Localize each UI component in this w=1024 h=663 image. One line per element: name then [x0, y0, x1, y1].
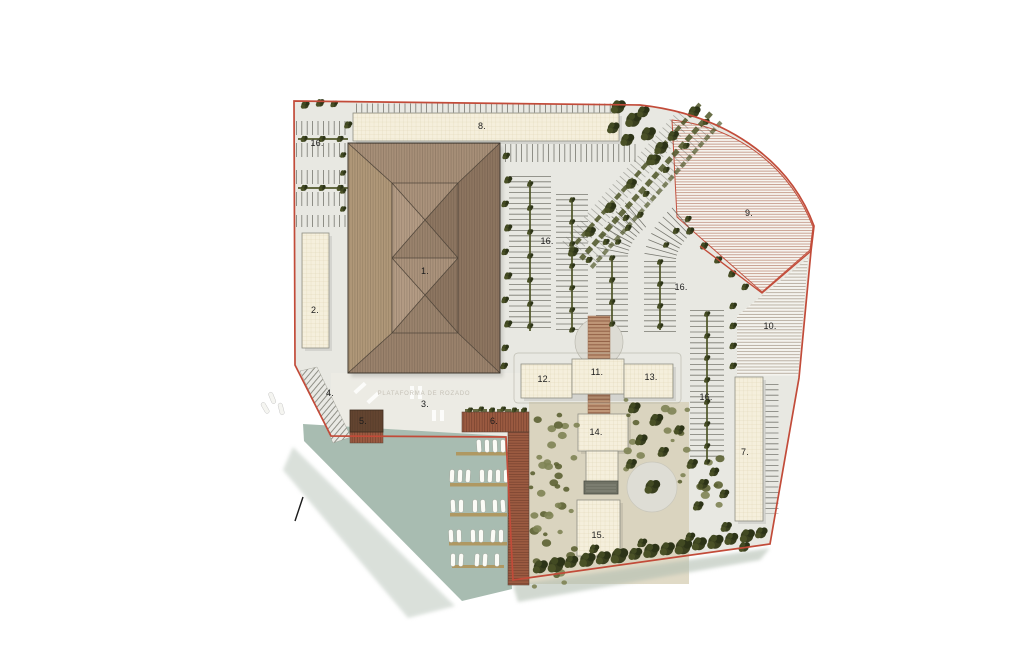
building-5 — [350, 410, 383, 443]
label-area-7: 7. — [741, 447, 749, 457]
label-area-11: 11. — [591, 367, 603, 377]
site-plan-canvas: 8. 16. 9. 16. 1. 16. 2. 10. 12. 11. 13. … — [0, 0, 1024, 663]
plaza-watermark-text: PLATAFORMA DE ROZADO — [378, 391, 471, 397]
label-area-12: 12. — [537, 374, 550, 384]
label-area-16-southeast: 16. — [699, 392, 712, 402]
label-area-5: 5. — [359, 416, 367, 426]
label-area-3: 3. — [421, 399, 429, 409]
label-area-4: 4. — [326, 388, 334, 398]
label-area-13: 13. — [644, 372, 657, 382]
label-area-15: 15. — [591, 530, 604, 540]
label-area-2: 2. — [311, 305, 319, 315]
outside-boats — [260, 392, 285, 416]
building-1-roof — [348, 143, 503, 377]
label-area-8: 8. — [478, 121, 486, 131]
label-area-10: 10. — [763, 321, 776, 331]
label-area-16-west: 16. — [310, 138, 323, 148]
label-area-16-east: 16. — [674, 282, 687, 292]
label-area-1: 1. — [421, 266, 429, 276]
label-area-9: 9. — [745, 208, 753, 218]
scale-tick-mark — [295, 497, 303, 521]
label-area-16-center: 16. — [540, 236, 553, 246]
site-plan-drawing — [0, 0, 1024, 663]
label-area-14: 14. — [589, 427, 602, 437]
label-area-6: 6. — [490, 416, 498, 426]
